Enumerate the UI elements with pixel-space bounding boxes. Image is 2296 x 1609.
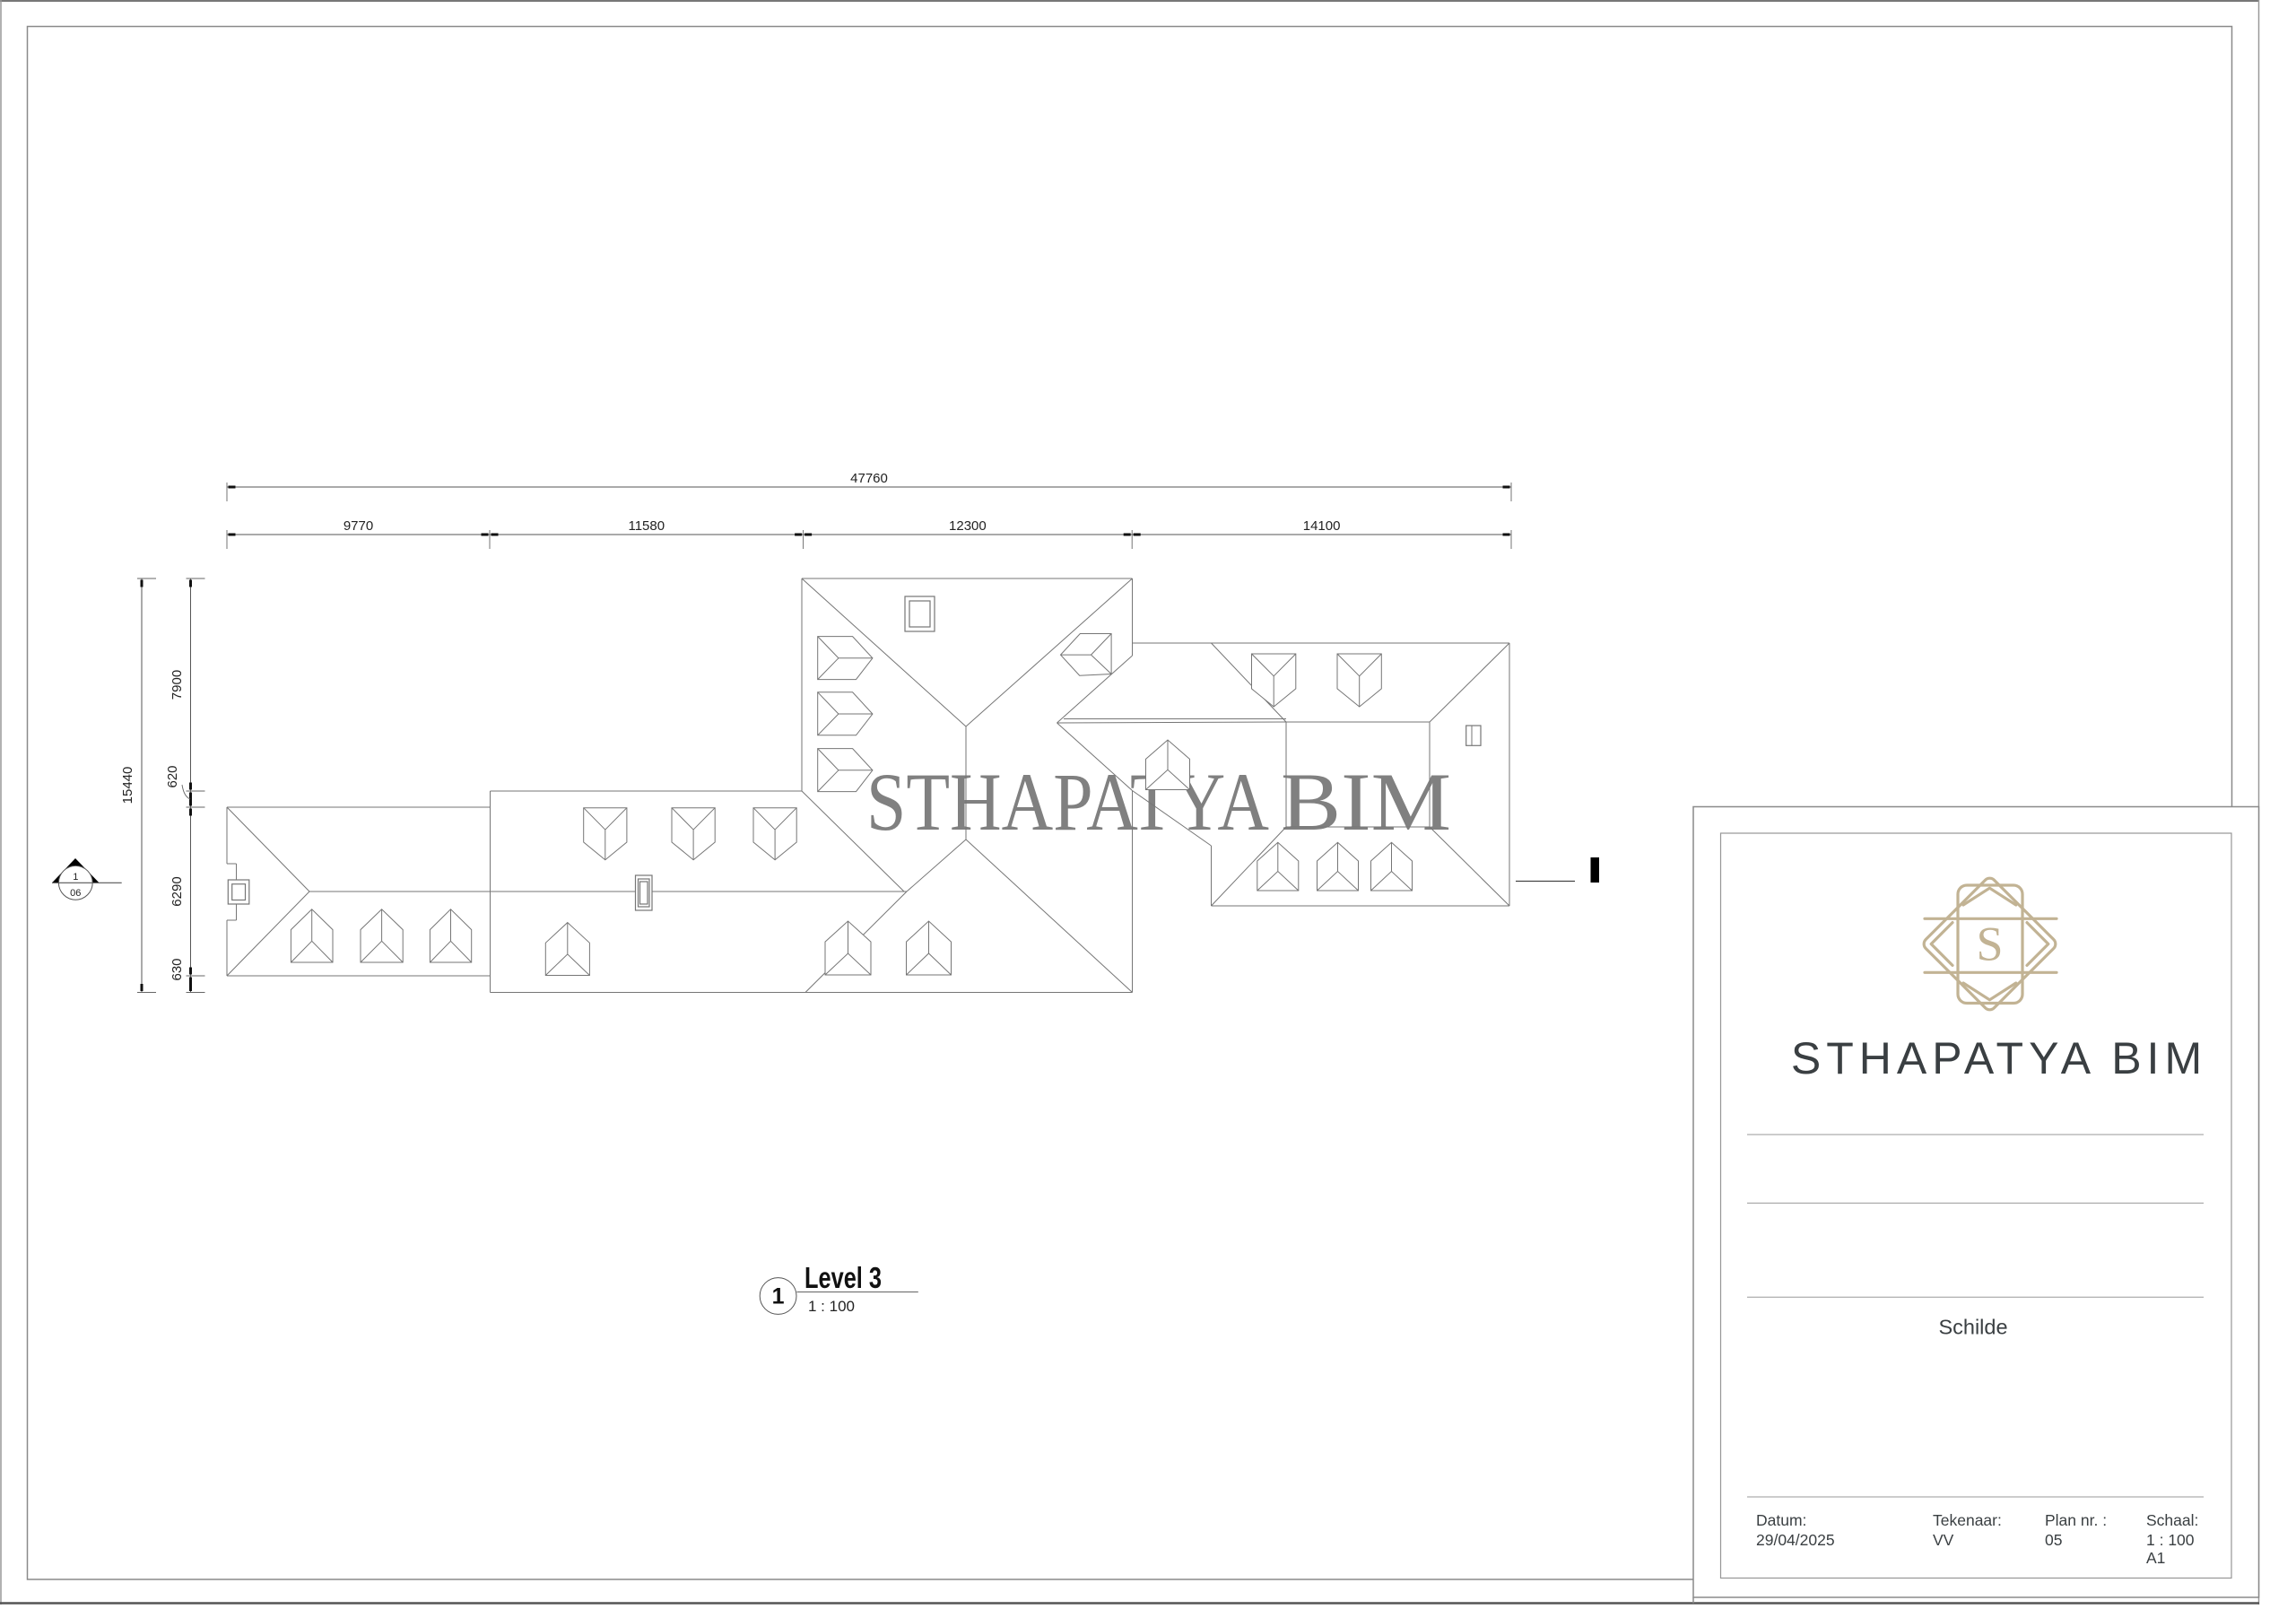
svg-text:630: 630 [170, 958, 185, 980]
svg-text:Tekenaar:: Tekenaar: [1933, 1511, 2002, 1529]
svg-text:A1: A1 [2146, 1549, 2165, 1567]
svg-text:47760: 47760 [850, 471, 888, 486]
svg-text:05: 05 [2045, 1531, 2062, 1549]
svg-text:6290: 6290 [170, 876, 185, 906]
svg-text:12300: 12300 [949, 518, 987, 534]
svg-text:1: 1 [73, 872, 78, 883]
svg-text:620: 620 [165, 765, 180, 787]
svg-text:1 : 100: 1 : 100 [2146, 1531, 2195, 1549]
svg-text:1: 1 [772, 1284, 785, 1309]
svg-text:BIM: BIM [1281, 756, 1451, 848]
svg-text:Schilde: Schilde [1938, 1316, 2007, 1339]
svg-text:STHAPATYA: STHAPATYA [866, 756, 1269, 848]
svg-text:Schaal:: Schaal: [2146, 1511, 2198, 1529]
svg-text:STHAPATYA BIM: STHAPATYA BIM [1791, 1033, 2207, 1083]
svg-text:Level 3: Level 3 [804, 1261, 882, 1294]
svg-text:9770: 9770 [344, 518, 373, 534]
svg-text:Datum:: Datum: [1756, 1511, 1806, 1529]
svg-text:11580: 11580 [628, 518, 665, 534]
svg-text:06: 06 [70, 888, 81, 899]
svg-text:14100: 14100 [1303, 518, 1341, 534]
svg-text:15440: 15440 [120, 767, 135, 804]
svg-text:29/04/2025: 29/04/2025 [1756, 1531, 1835, 1549]
svg-text:Plan nr. :: Plan nr. : [2045, 1511, 2107, 1529]
svg-text:7900: 7900 [170, 670, 185, 700]
svg-text:1 : 100: 1 : 100 [808, 1298, 855, 1315]
svg-text:S: S [1976, 918, 2003, 971]
svg-text:VV: VV [1933, 1531, 1954, 1549]
